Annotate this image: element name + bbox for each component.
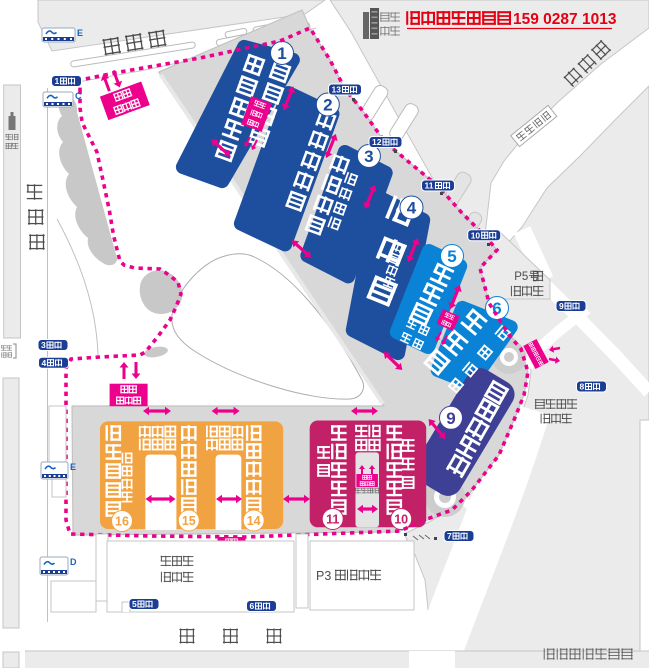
svg-text:D: D	[70, 557, 77, 567]
svg-text:8: 8	[580, 382, 585, 392]
svg-text:P3: P3	[316, 569, 331, 583]
svg-text:11: 11	[326, 513, 339, 527]
svg-text:5: 5	[447, 247, 456, 266]
svg-text:15: 15	[182, 514, 196, 528]
svg-text:E: E	[70, 462, 76, 472]
svg-text:4: 4	[42, 358, 47, 368]
svg-text:3: 3	[364, 147, 373, 166]
svg-text:10: 10	[394, 513, 408, 527]
svg-text:6: 6	[492, 299, 501, 318]
svg-text:2: 2	[323, 96, 332, 115]
svg-text:10: 10	[471, 230, 481, 240]
svg-text:3: 3	[41, 340, 46, 350]
svg-text:11: 11	[425, 181, 434, 191]
svg-text:1: 1	[277, 44, 286, 63]
svg-text:9: 9	[446, 409, 455, 428]
svg-text:1: 1	[55, 76, 60, 86]
svg-text:4: 4	[407, 199, 417, 218]
svg-text:E: E	[77, 28, 83, 38]
svg-text:13: 13	[332, 85, 342, 95]
svg-text:14: 14	[247, 514, 261, 528]
svg-text:6: 6	[250, 601, 255, 611]
svg-text:5: 5	[132, 599, 137, 609]
svg-text:16: 16	[115, 515, 129, 529]
svg-text:12: 12	[372, 137, 382, 147]
svg-text:C: C	[75, 91, 82, 101]
svg-text:9: 9	[559, 301, 564, 311]
svg-text:7: 7	[447, 531, 452, 541]
svg-text:159 0287 1013: 159 0287 1013	[513, 11, 617, 28]
